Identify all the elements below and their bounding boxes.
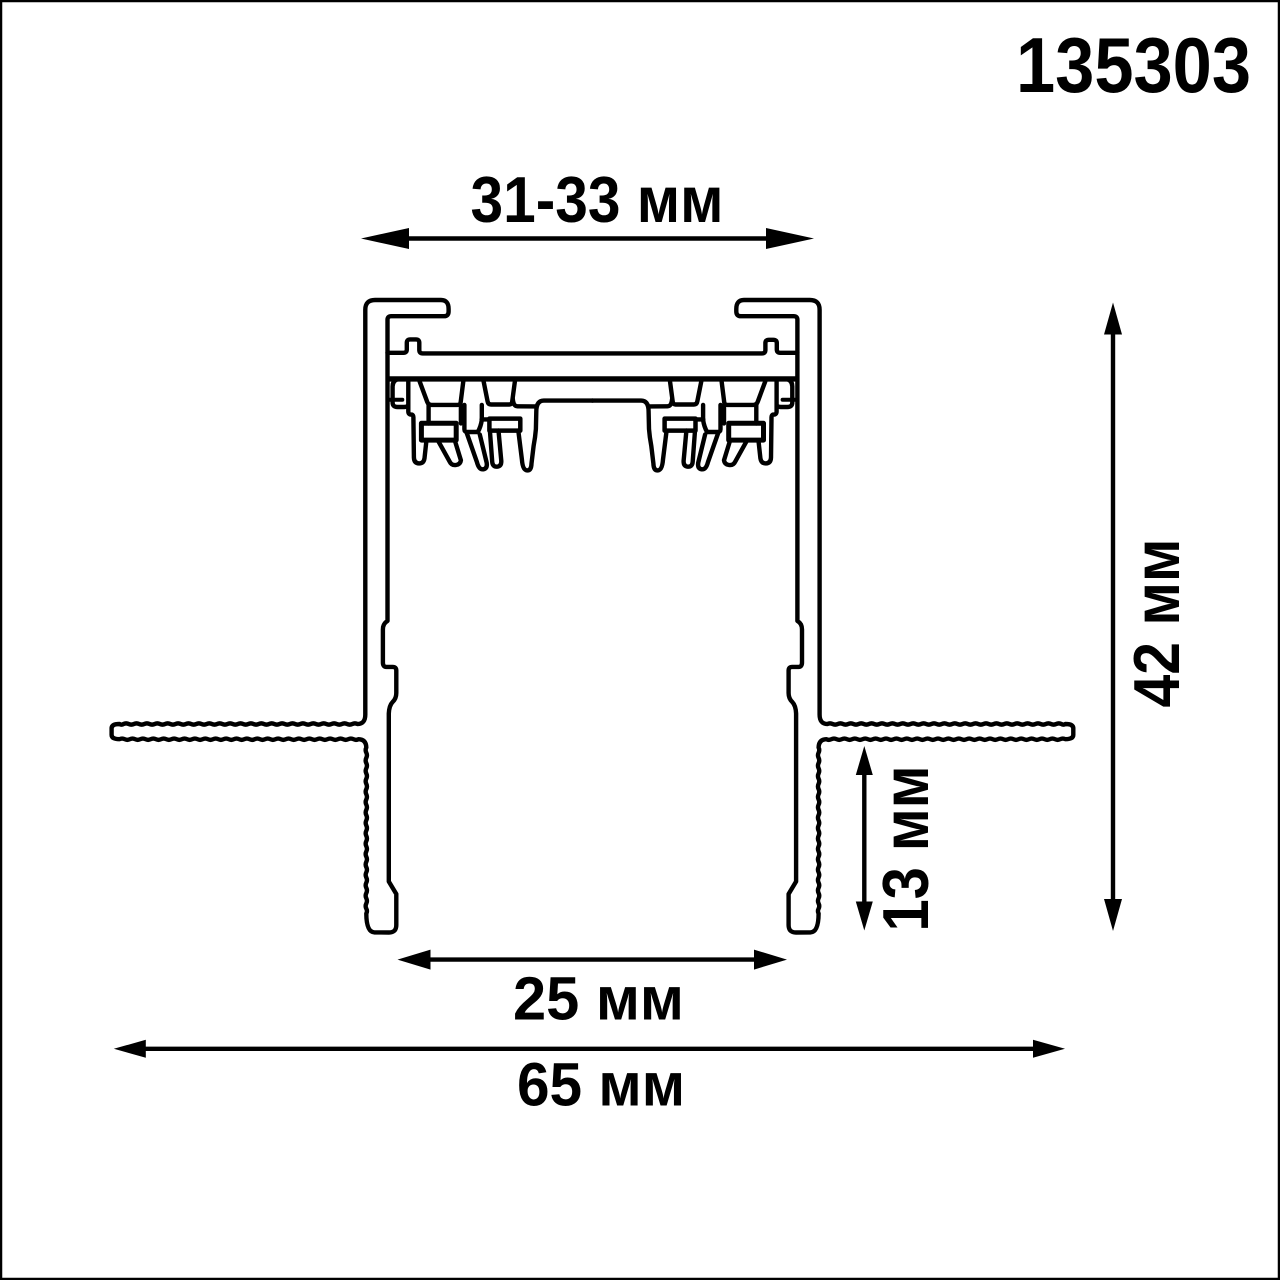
svg-text:25 мм: 25 мм	[513, 965, 684, 1034]
svg-text:42 мм: 42 мм	[1120, 539, 1193, 708]
svg-text:65 мм: 65 мм	[517, 1051, 685, 1120]
svg-text:31-33 мм: 31-33 мм	[471, 163, 724, 236]
svg-text:135303: 135303	[1016, 21, 1251, 109]
svg-text:13 мм: 13 мм	[869, 766, 942, 932]
